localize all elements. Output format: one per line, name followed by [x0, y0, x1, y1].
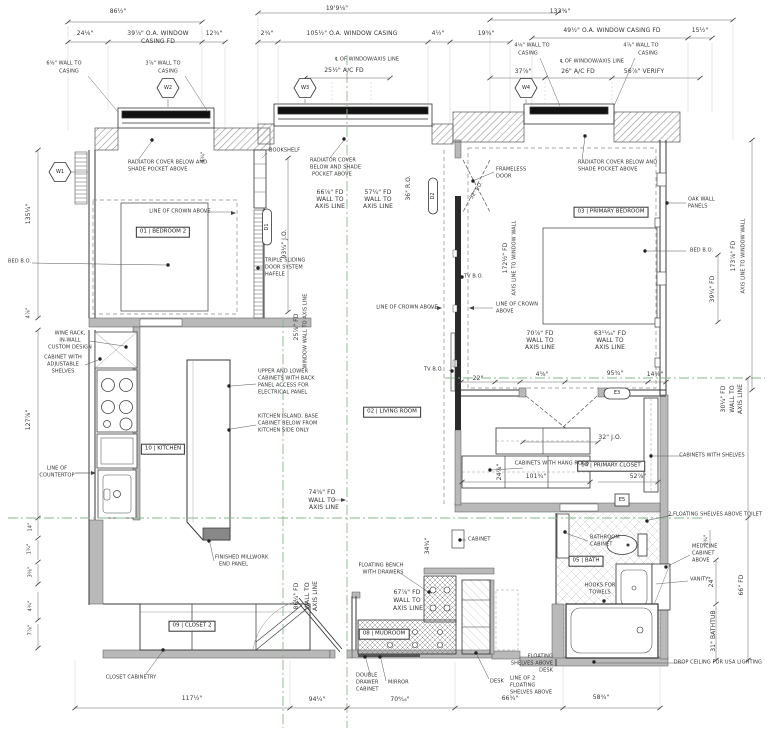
- dim-fd70-c: AXIS LINE: [525, 345, 555, 351]
- dim-fd173: 173⅞" FD: [731, 241, 737, 272]
- window-tag-w1: W1: [56, 169, 64, 175]
- note-cabinet-adj-3: SHELVES: [52, 370, 75, 375]
- dim-fd173-b: AXIS LINE TO WINDOW WALL: [742, 219, 747, 294]
- room-label-bath: 05 | BATH: [569, 556, 604, 567]
- note-radiator-mid-3: POCKET ABOVE: [312, 173, 352, 178]
- dim-bottom-70: 70⁹⁄₁₆": [390, 697, 409, 703]
- door-tag-d2: D2: [430, 192, 436, 199]
- note-crown-bedroom2: LINE OF CROWN ABOVE: [149, 210, 210, 215]
- note-dbl-3: CABINET: [356, 688, 378, 693]
- dim-fd67-b: WALL TO: [393, 598, 420, 604]
- room-label-closet2: 09 | CLOSET 2: [169, 621, 216, 632]
- dim-right-casing1b: CASING: [518, 52, 538, 57]
- note-medicine-2: CABINET: [692, 552, 714, 557]
- dim-mid-seg2: 4½": [432, 31, 445, 37]
- note-upper-1: UPPER AND LOWER: [258, 370, 308, 375]
- dim-right-casing2b: CASING: [638, 52, 658, 57]
- dim-left-seg1: 24⅛": [77, 31, 94, 37]
- dim-34: 34¾": [425, 538, 431, 555]
- dim-right-overall: 133⅜": [550, 9, 571, 15]
- dim-95: 95¾": [607, 371, 624, 377]
- note-medicine-3: ABOVE: [692, 559, 710, 564]
- dim-vanity-24: 24": [709, 577, 715, 588]
- note-float-desk-1: FLOATING: [528, 655, 553, 660]
- note-shelves-toilet: 2 FLOATING SHELVES ABOVE TOILET: [668, 513, 762, 518]
- note-dbl-1: DOUBLE: [356, 674, 377, 679]
- dim-fd30-c: AXIS LINE: [738, 384, 744, 414]
- dim-31-bathtub: 31" BATHTUB: [711, 610, 717, 652]
- note-float-desk-3: DESK: [539, 669, 553, 674]
- dim-right-centerline: ℄ OF WINDOW/AXIS LINE: [560, 60, 624, 65]
- note-frameless-1: FRAMELESS: [496, 168, 526, 173]
- dim-4-58: 4⅝": [536, 372, 549, 378]
- dim-left-seg2: 12¾": [206, 31, 223, 37]
- note-upper-3: PANEL ACCESS FOR: [258, 384, 309, 389]
- dim-left-3: 3⅝": [29, 567, 34, 578]
- window-tag-w3: W3: [301, 85, 309, 91]
- dim-14-58: 14⅝": [647, 372, 664, 378]
- note-radiator-right-2: SHADE POCKET ABOVE: [578, 168, 637, 173]
- dim-ro36: 36" R.O.: [406, 175, 412, 200]
- note-medicine-1: MEDICINE: [692, 545, 717, 550]
- dim-mid-seg3: 19¾": [478, 31, 495, 37]
- note-radiator-mid-1: RADIATOR COVER: [310, 159, 356, 164]
- room-label-bedroom2: 01 | BEDROOM 2: [136, 227, 190, 238]
- dim-fd74: 74⅝" FD: [309, 490, 336, 496]
- dim-fd86: 86¼" FD: [294, 583, 300, 610]
- note-island-3: KITCHEN SIDE ONLY: [258, 429, 309, 434]
- room-label-primary-bedroom: 03 | PRIMARY BEDROOM: [574, 207, 649, 218]
- dim-22: 22": [473, 376, 484, 382]
- note-wine-2: IN-WALL: [59, 339, 80, 344]
- dim-left-4: 4¾": [29, 601, 34, 612]
- dim-hall57-c: AXIS LINE: [363, 204, 393, 210]
- note-island-2: CABINET BELOW FROM: [258, 422, 317, 427]
- floorplan-canvas: 01 | BEDROOM 2 02 | LIVING ROOM 03 | PRI…: [0, 0, 768, 731]
- dim-bottom-58: 58¾": [593, 695, 610, 701]
- dim-24-78: 24⅞": [497, 464, 503, 481]
- note-cabinets-shelves: CABINETS WITH SHELVES: [679, 454, 745, 459]
- dim-fd172: 172½" FD: [503, 243, 509, 274]
- note-vanity: VANITY: [690, 578, 708, 583]
- note-tv-bo-2: TV B.O.: [424, 368, 443, 373]
- dim-bottom-66: 66¾": [502, 696, 519, 702]
- note-radiator-mid-2: BELOW AND SHADE: [310, 166, 361, 171]
- dim-fd67: 67⅞" FD: [394, 590, 421, 596]
- dim-left-overall: 86½": [110, 9, 127, 15]
- note-closet-cabinetry: CLOSET CABINETRY: [106, 676, 157, 681]
- note-bench-2: WITH DRAWERS: [362, 571, 403, 576]
- note-upper-4: ELECTRICAL PANEL: [258, 391, 307, 396]
- note-cabinet-adj-2: ADJUSTABLE: [47, 363, 79, 368]
- dim-right-seg1: 15½": [692, 28, 709, 34]
- dim-mid-overall: 19'9⅛": [326, 6, 348, 12]
- dim-mid-window: 105½" O.A. WINDOW CASING: [307, 31, 398, 37]
- note-wine-3: CUSTOM DESIGN: [48, 346, 92, 351]
- note-line2float-3: SHELVES ABOVE: [510, 691, 552, 696]
- note-dbl-2: DRAWER: [356, 681, 378, 686]
- door-tag-e3: E3: [614, 390, 620, 396]
- note-cabinet-adj-1: CABINET WITH: [44, 356, 82, 361]
- dim-right-ac: 26" A/C FD: [561, 69, 595, 75]
- dim-left-1: 1¼": [28, 544, 33, 555]
- dim-right-casing1: 4⅛" WALL TO: [514, 44, 549, 49]
- dim-window-wall-axis: WINDOW WALL TO AXIS LINE: [304, 294, 309, 369]
- dim-mid-centerline: ℄ OF WINDOW/AXIS LINE: [335, 58, 399, 63]
- dim-left-casing1b: CASING: [59, 70, 79, 75]
- dim-fd86-c: AXIS LINE: [313, 581, 319, 611]
- dim-left-window-2: CASING FD: [141, 39, 175, 45]
- note-frameless-2: DOOR: [496, 175, 512, 180]
- dim-fd30-b: WALL TO: [730, 385, 736, 412]
- dim-right-seg2: 37⅞": [515, 69, 532, 75]
- dim-left-casing2b: CASING: [158, 70, 178, 75]
- dim-left-14: 14": [29, 523, 34, 532]
- note-countertop-2: COUNTERTOP: [39, 474, 74, 479]
- note-island-1: KITCHEN ISLAND, BASE: [258, 415, 318, 420]
- dim-66-fd: 66" FD: [739, 575, 745, 596]
- note-triple-3: HAFELE: [265, 273, 285, 278]
- note-radiator-right-1: RADIATOR COVER BELOW AND: [578, 161, 657, 166]
- window-tag-w4: W4: [522, 85, 530, 91]
- note-desk: DESK: [490, 680, 504, 685]
- dim-mid-seg1: 2¾": [261, 31, 274, 37]
- note-radiator-left-2: SHADE POCKET ABOVE: [128, 168, 187, 173]
- note-hooks-2: TOWELS: [589, 591, 611, 596]
- floorplan-linework: [0, 0, 768, 731]
- note-triple-2: DOOR SYSTEM: [265, 266, 303, 271]
- note-countertop-1: LINE OF: [47, 467, 67, 472]
- room-label-mudroom: 08 | MUDROOM: [359, 629, 410, 640]
- dim-fd67-c: AXIS LINE: [393, 606, 423, 612]
- dim-jo32-closet: 32" J.O.: [598, 435, 621, 441]
- tag-e5: E5: [619, 497, 625, 503]
- room-label-kitchen: 10 | KITCHEN: [141, 444, 185, 455]
- dim-bottom-94: 94¼": [309, 697, 326, 703]
- dim-left-4b: 4⅞": [27, 308, 32, 319]
- note-radiator-left-1: RADIATOR COVER BELOW AND: [128, 161, 207, 166]
- note-line2float-2: FLOATING: [510, 684, 535, 689]
- note-crown-primary-1: LINE OF CROWN: [496, 303, 538, 308]
- dim-101: 101¾": [526, 474, 547, 480]
- note-bathcab-2: CABINET: [590, 543, 612, 548]
- note-hooks-1: HOOKS FOR: [585, 584, 616, 589]
- note-bookshelf: BOOKSHELF: [269, 149, 300, 154]
- dim-right-window: 49½" O.A. WINDOW CASING FD: [563, 28, 660, 34]
- note-handrods: CABINETS WITH HANG RODS: [515, 462, 589, 467]
- note-cabinet: CABINET: [468, 538, 490, 543]
- note-crown-living: LINE OF CROWN ABOVE: [376, 306, 437, 311]
- dim-fd74-c: AXIS LINE: [309, 505, 339, 511]
- dim-left-7: 7⅞": [29, 625, 34, 636]
- note-tv-bo-1: TV B.O.: [464, 275, 483, 280]
- dim-fd86-b: WALL TO: [305, 582, 311, 609]
- note-line2float-1: LINE OF 2: [510, 677, 535, 682]
- note-bathcab-1: BATHROOM: [590, 536, 620, 541]
- dim-mid-ac: 25½" A/C FD: [324, 68, 364, 74]
- note-bed-bo-left: BED B.O.: [8, 260, 31, 265]
- dim-left-135: 135¼": [26, 204, 32, 225]
- note-crown-primary-2: ABOVE: [496, 310, 514, 315]
- dim-left-casing1: 6⅝" WALL TO: [46, 62, 81, 67]
- dim-fd39: 39¼" FD: [710, 276, 716, 303]
- dim-left-window: 39⅞" O.A. WINDOW: [127, 31, 188, 37]
- note-mirror: MIRROR: [388, 681, 409, 686]
- note-drop-ceiling: DROP CEILING FOR USA LIGHTING: [674, 661, 762, 666]
- dim-hall66-c: AXIS LINE: [315, 204, 345, 210]
- note-bed-bo-right: BED B.O.: [690, 249, 713, 254]
- dim-fd63-c: AXIS LINE: [595, 345, 625, 351]
- note-oak-1: OAK WALL: [688, 198, 715, 203]
- door-tag-d1: D1: [264, 223, 270, 230]
- dim-left-casing2: 3⅞" WALL TO: [145, 62, 180, 67]
- room-label-living: 02 | LIVING ROOM: [363, 407, 421, 418]
- dim-bottom-117: 117½": [182, 696, 203, 702]
- dim-jo93: 93¼" J.O.: [282, 229, 288, 258]
- note-upper-2: CABINETS WITH BACK: [258, 377, 315, 382]
- dim-fd172-b: AXIS LINE TO WINDOW WALL: [513, 221, 518, 296]
- note-millwork-2: END PANEL: [219, 563, 248, 568]
- note-wine-1: WINE RACK,: [55, 332, 86, 337]
- dim-52: 52⅞": [630, 474, 647, 480]
- note-oak-2: PANELS: [688, 205, 708, 210]
- dim-right-verify: 56⅞" VERIFY: [624, 69, 664, 75]
- dim-fd25: 25⅞" FD: [294, 314, 300, 341]
- window-tag-w2: W2: [164, 85, 172, 91]
- note-millwork-1: FINISHED MILLWORK: [215, 556, 268, 561]
- note-triple-1: TRIPLE SLIDING: [265, 259, 305, 264]
- note-bench-1: FLOATING BENCH: [358, 564, 403, 569]
- dim-left-127: 127⅞": [26, 410, 32, 431]
- note-float-desk-2: SHELVES ABOVE: [511, 662, 553, 667]
- dim-right-casing2: 4⅞" WALL TO: [623, 44, 658, 49]
- dim-fd30: 30¼" FD: [721, 386, 727, 413]
